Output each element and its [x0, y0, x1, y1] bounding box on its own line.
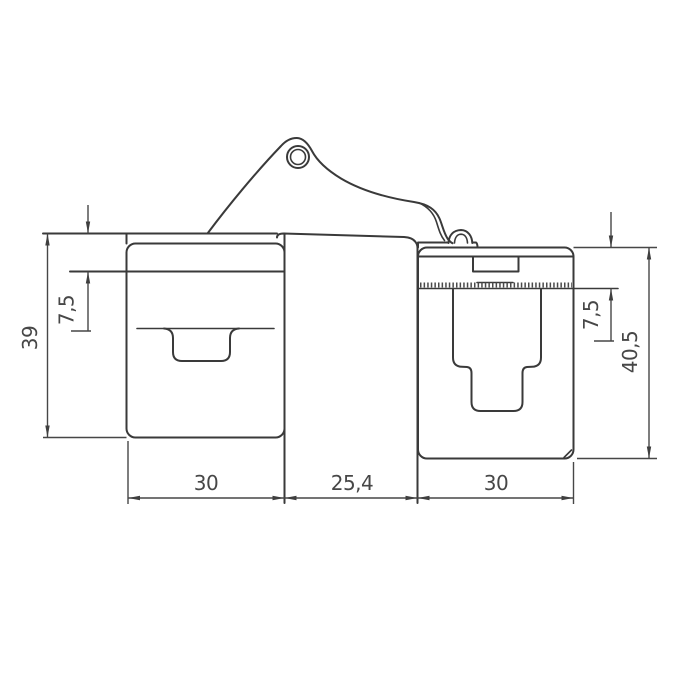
arrowhead-up	[86, 272, 90, 284]
left-mounting-body	[43, 234, 285, 438]
pivot-hole-inner	[291, 150, 306, 165]
arrowhead-down	[647, 447, 651, 459]
center-block-top-edge	[277, 234, 418, 249]
arrowhead-left-2	[285, 496, 297, 500]
arm-knuckle-inner	[455, 234, 468, 243]
dimension-label-7-5-left: 7,5	[55, 295, 79, 325]
dimension-right-height: 40,5	[574, 248, 658, 459]
dimension-bottom-widths: 30 25,4 30	[128, 441, 574, 504]
dimension-right-offset: 7,5	[579, 212, 614, 341]
hinge-arm	[208, 138, 473, 243]
arrowhead-right-1	[273, 496, 285, 500]
left-body-pocket	[164, 329, 239, 362]
dimension-left-height: 39	[18, 234, 127, 438]
arrowhead-up	[45, 234, 49, 246]
arrowhead-left-3	[418, 496, 430, 500]
arrowhead-down	[609, 236, 613, 248]
center-block	[277, 234, 418, 504]
dimension-label-30-left: 30	[194, 471, 218, 495]
right-body-outline	[418, 248, 574, 459]
dimension-label-25-4: 25,4	[331, 471, 374, 495]
right-body-notch	[473, 257, 519, 272]
hinge-arm-outline	[208, 138, 453, 243]
dimension-label-39: 39	[18, 326, 42, 350]
left-body-outline	[127, 244, 285, 438]
dimension-left-offset: 7,5	[55, 205, 92, 331]
arrowhead-right-2	[406, 496, 418, 500]
arrowhead-up	[647, 248, 651, 260]
dimension-label-7-5-right: 7,5	[579, 300, 603, 330]
arrowhead-right-3	[562, 496, 574, 500]
right-mounting-body	[418, 243, 618, 459]
arm-knuckle-outer	[449, 230, 473, 243]
hinge-technical-drawing: 39 7,5 7,5 40,5 30 2	[0, 0, 700, 700]
dimension-label-30-right: 30	[484, 471, 508, 495]
arrowhead-down	[45, 426, 49, 438]
dimension-label-40-5: 40,5	[618, 331, 642, 374]
right-body-stepped-pocket	[453, 289, 541, 411]
arrowhead-down	[86, 222, 90, 234]
arrowhead-left-1	[128, 496, 140, 500]
arrowhead-up	[609, 289, 613, 301]
technical-drawing-page: 39 7,5 7,5 40,5 30 2	[0, 0, 700, 700]
